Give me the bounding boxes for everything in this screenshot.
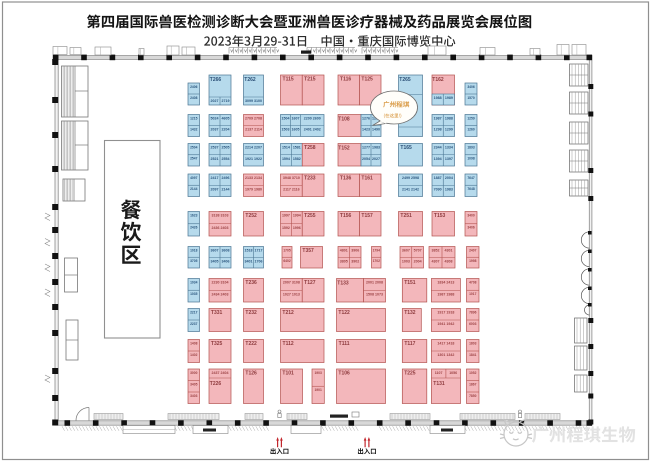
svg-text:T136: T136 [340, 176, 352, 182]
svg-text:2496: 2496 [222, 176, 230, 180]
svg-text:3099 3100: 3099 3100 [245, 99, 262, 103]
svg-text:1260: 1260 [467, 127, 475, 131]
svg-text:T325: T325 [211, 341, 223, 347]
svg-text:1417 1418: 1417 1418 [437, 342, 454, 346]
svg-text:T251: T251 [400, 213, 412, 219]
svg-text:7090: 7090 [434, 187, 442, 191]
svg-text:1298: 1298 [434, 128, 442, 132]
svg-text:1705: 1705 [283, 248, 291, 252]
svg-text:T157: T157 [361, 213, 373, 219]
svg-text:T127: T127 [304, 280, 316, 286]
svg-text:T101: T101 [282, 371, 294, 377]
svg-text:1408: 1408 [190, 341, 198, 345]
svg-text:T151: T151 [404, 280, 416, 286]
svg-text:2537: 2537 [211, 146, 219, 150]
svg-text:2007 3108: 2007 3108 [283, 281, 300, 285]
svg-text:1277: 1277 [362, 146, 370, 150]
svg-text:1717: 1717 [255, 249, 263, 253]
svg-text:1215: 1215 [190, 116, 198, 120]
svg-text:6003: 6003 [469, 322, 477, 326]
svg-text:1941 1942: 1941 1942 [437, 322, 454, 326]
svg-text:T162: T162 [432, 77, 444, 83]
svg-text:2230 3104: 2230 3104 [212, 281, 229, 285]
svg-text:T156: T156 [340, 213, 352, 219]
svg-text:T255: T255 [304, 213, 316, 219]
svg-text:1003: 1003 [402, 259, 410, 263]
svg-text:1623: 1623 [190, 213, 198, 217]
svg-text:1979 1980: 1979 1980 [245, 187, 262, 191]
svg-text:1518: 1518 [245, 249, 253, 253]
svg-text:2547: 2547 [190, 157, 198, 161]
svg-text:1987 1988: 1987 1988 [437, 292, 454, 296]
svg-text:T215: T215 [304, 77, 316, 83]
svg-text:1490: 1490 [372, 128, 380, 132]
svg-text:1394: 1394 [434, 157, 442, 161]
svg-text:4801: 4801 [340, 249, 348, 253]
svg-text:3607: 3607 [211, 249, 219, 253]
svg-text:1334: 1334 [445, 146, 453, 150]
svg-text:3406: 3406 [467, 85, 475, 89]
svg-text:1432: 1432 [190, 127, 198, 131]
svg-text:T125: T125 [361, 77, 373, 83]
svg-text:3405: 3405 [190, 382, 198, 386]
svg-text:2521: 2521 [211, 157, 219, 161]
svg-text:2137 2114: 2137 2114 [245, 128, 262, 132]
svg-text:1018: 1018 [190, 248, 198, 252]
svg-text:T236: T236 [245, 280, 257, 286]
svg-text:T331: T331 [211, 310, 223, 316]
svg-text:3948 3710: 3948 3710 [283, 176, 300, 180]
svg-text:2401 2402: 2401 2402 [304, 128, 321, 132]
svg-text:T232: T232 [245, 310, 257, 316]
svg-text:1098: 1098 [467, 157, 475, 161]
svg-text:2004: 2004 [414, 259, 422, 263]
svg-text:T106: T106 [338, 371, 350, 377]
svg-text:T212: T212 [282, 310, 294, 316]
svg-text:T233: T233 [304, 176, 316, 182]
svg-text:1017: 1017 [469, 292, 477, 296]
svg-text:1893: 1893 [467, 145, 475, 149]
svg-text:1594: 1594 [282, 157, 290, 161]
svg-text:3705: 3705 [190, 259, 198, 263]
svg-text:2437 2404: 2437 2404 [212, 371, 229, 375]
svg-text:T111: T111 [339, 341, 350, 347]
svg-text:1998: 1998 [469, 259, 477, 263]
svg-text:2027: 2027 [372, 157, 380, 161]
svg-text:2097: 2097 [211, 187, 219, 191]
svg-text:1276: 1276 [362, 117, 370, 121]
svg-text:1034: 1034 [190, 280, 198, 284]
svg-text:1027 1013: 1027 1013 [283, 292, 300, 296]
svg-text:2434 2403: 2434 2403 [212, 292, 229, 296]
svg-text:1504: 1504 [282, 117, 290, 121]
svg-text:1988: 1988 [445, 117, 453, 121]
svg-text:1994: 1994 [293, 214, 301, 218]
svg-text:3405: 3405 [211, 259, 219, 263]
svg-text:2417: 2417 [211, 176, 219, 180]
svg-text:2554: 2554 [222, 157, 230, 161]
svg-text:2505: 2505 [222, 146, 230, 150]
svg-text:1503: 1503 [282, 128, 290, 132]
svg-text:3852: 3852 [432, 249, 440, 253]
svg-text:1402: 1402 [190, 353, 198, 357]
svg-text:2408: 2408 [190, 96, 198, 100]
svg-text:2406: 2406 [190, 85, 198, 89]
svg-text:1052: 1052 [469, 371, 477, 375]
svg-text:T265: T265 [399, 77, 411, 83]
svg-text:3401: 3401 [245, 259, 253, 263]
svg-text:2001 2008: 2001 2008 [366, 281, 383, 285]
svg-text:2344: 2344 [434, 146, 442, 150]
svg-text:T252: T252 [245, 213, 257, 219]
svg-text:2133 2134: 2133 2134 [245, 176, 262, 180]
svg-text:T115: T115 [283, 77, 294, 83]
svg-text:T112: T112 [283, 341, 294, 347]
svg-text:4605: 4605 [222, 117, 230, 121]
svg-text:T258: T258 [304, 145, 316, 151]
svg-text:3403: 3403 [190, 394, 198, 398]
svg-text:2436 2403: 2436 2403 [212, 226, 229, 230]
svg-text:2217: 2217 [190, 310, 198, 314]
svg-text:1841: 1841 [469, 353, 477, 357]
svg-text:T108: T108 [338, 117, 350, 123]
svg-text:1259: 1259 [467, 116, 475, 120]
svg-text:1581: 1581 [293, 146, 301, 150]
svg-text:1056: 1056 [449, 371, 457, 375]
svg-text:1107: 1107 [435, 371, 443, 375]
svg-text:1803: 1803 [469, 341, 477, 345]
svg-text:1706: 1706 [255, 259, 263, 263]
svg-text:1989: 1989 [445, 96, 453, 100]
svg-text:1423: 1423 [362, 128, 370, 132]
svg-text:1988: 1988 [434, 96, 442, 100]
svg-text:T132: T132 [404, 310, 416, 316]
svg-text:T131: T131 [433, 381, 445, 387]
svg-text:7647: 7647 [467, 176, 475, 180]
svg-text:1299: 1299 [445, 128, 453, 132]
svg-text:1702: 1702 [373, 259, 381, 263]
svg-text:T225: T225 [404, 371, 416, 377]
svg-text:T122: T122 [338, 310, 350, 316]
svg-text:2407: 2407 [469, 248, 477, 252]
svg-text:2204: 2204 [222, 128, 230, 132]
svg-text:1867: 1867 [469, 382, 477, 386]
svg-text:1514: 1514 [282, 146, 290, 150]
svg-text:T161: T161 [361, 176, 373, 182]
svg-text:1997: 1997 [282, 214, 290, 218]
svg-text:1592: 1592 [282, 226, 290, 230]
svg-text:1987: 1987 [434, 117, 442, 121]
svg-text:T357: T357 [302, 248, 314, 254]
svg-text:3406: 3406 [222, 259, 230, 263]
svg-text:T165: T165 [400, 145, 412, 151]
svg-text:T152: T152 [338, 146, 350, 152]
svg-text:1607: 1607 [292, 117, 300, 121]
svg-text:7648: 7648 [467, 187, 475, 191]
svg-text:2144: 2144 [190, 187, 198, 191]
svg-text:T116: T116 [340, 77, 351, 83]
svg-text:1570: 1570 [467, 96, 475, 100]
svg-text:1794: 1794 [373, 248, 381, 252]
svg-text:T222: T222 [245, 341, 257, 347]
svg-text:2709 2708: 2709 2708 [245, 117, 262, 121]
svg-text:2037: 2037 [211, 128, 219, 132]
svg-text:2719: 2719 [222, 99, 230, 103]
svg-text:1917 1918: 1917 1918 [437, 311, 454, 315]
svg-text:6402: 6402 [283, 259, 291, 263]
svg-text:2054: 2054 [362, 157, 370, 161]
svg-text:3906: 3906 [351, 249, 359, 253]
svg-text:2499 2598: 2499 2598 [402, 176, 419, 180]
svg-text:4708: 4708 [469, 280, 477, 284]
svg-text:2200 2600: 2200 2600 [304, 117, 321, 121]
svg-text:1921 1922: 1921 1922 [245, 157, 262, 161]
svg-text:3400: 3400 [467, 213, 475, 217]
svg-text:5707: 5707 [414, 249, 422, 253]
svg-text:5024: 5024 [211, 117, 219, 121]
svg-text:1996: 1996 [293, 226, 301, 230]
svg-text:3000: 3000 [190, 371, 198, 375]
svg-text:1605: 1605 [292, 128, 300, 132]
svg-text:2504: 2504 [190, 145, 198, 149]
svg-text:1834 2413: 1834 2413 [437, 281, 454, 285]
svg-text:T226: T226 [210, 381, 222, 387]
svg-text:T133: T133 [337, 281, 349, 287]
svg-text:3138 3103: 3138 3103 [212, 214, 229, 218]
svg-text:2237: 2237 [190, 322, 198, 326]
svg-text:4308: 4308 [445, 259, 453, 263]
svg-text:T266: T266 [210, 77, 222, 83]
svg-text:2141 2142: 2141 2142 [402, 187, 419, 191]
svg-text:2144: 2144 [222, 187, 230, 191]
svg-text:T126: T126 [245, 371, 257, 377]
svg-text:2117 2116: 2117 2116 [283, 187, 300, 191]
svg-text:T153: T153 [434, 213, 446, 219]
svg-text:1301 1342: 1301 1342 [437, 353, 454, 357]
svg-text:2214 2207: 2214 2207 [245, 146, 262, 150]
svg-text:3607: 3607 [402, 249, 410, 253]
svg-text:1887: 1887 [434, 176, 442, 180]
svg-text:1582: 1582 [293, 157, 301, 161]
svg-text:T117: T117 [404, 341, 415, 347]
svg-text:4301: 4301 [445, 249, 453, 253]
svg-text:1397: 1397 [445, 157, 453, 161]
svg-text:1983: 1983 [372, 146, 380, 150]
svg-text:7896: 7896 [469, 310, 477, 314]
svg-text:1035: 1035 [190, 292, 198, 296]
svg-text:7850: 7850 [469, 394, 477, 398]
svg-text:4307: 4307 [432, 259, 440, 263]
svg-text:2027: 2027 [211, 99, 219, 103]
svg-text:4097: 4097 [190, 176, 198, 180]
svg-text:1901: 1901 [314, 388, 322, 392]
svg-text:3805: 3805 [340, 259, 348, 263]
svg-text:1983: 1983 [445, 187, 453, 191]
svg-text:3608: 3608 [222, 249, 230, 253]
svg-text:3406: 3406 [467, 226, 475, 230]
svg-text:2004: 2004 [445, 176, 453, 180]
svg-text:1508 1073: 1508 1073 [366, 292, 383, 296]
svg-text:T262: T262 [244, 77, 256, 83]
svg-text:1903: 1903 [314, 371, 322, 375]
svg-text:2426: 2426 [190, 226, 198, 230]
svg-text:3902: 3902 [351, 259, 359, 263]
